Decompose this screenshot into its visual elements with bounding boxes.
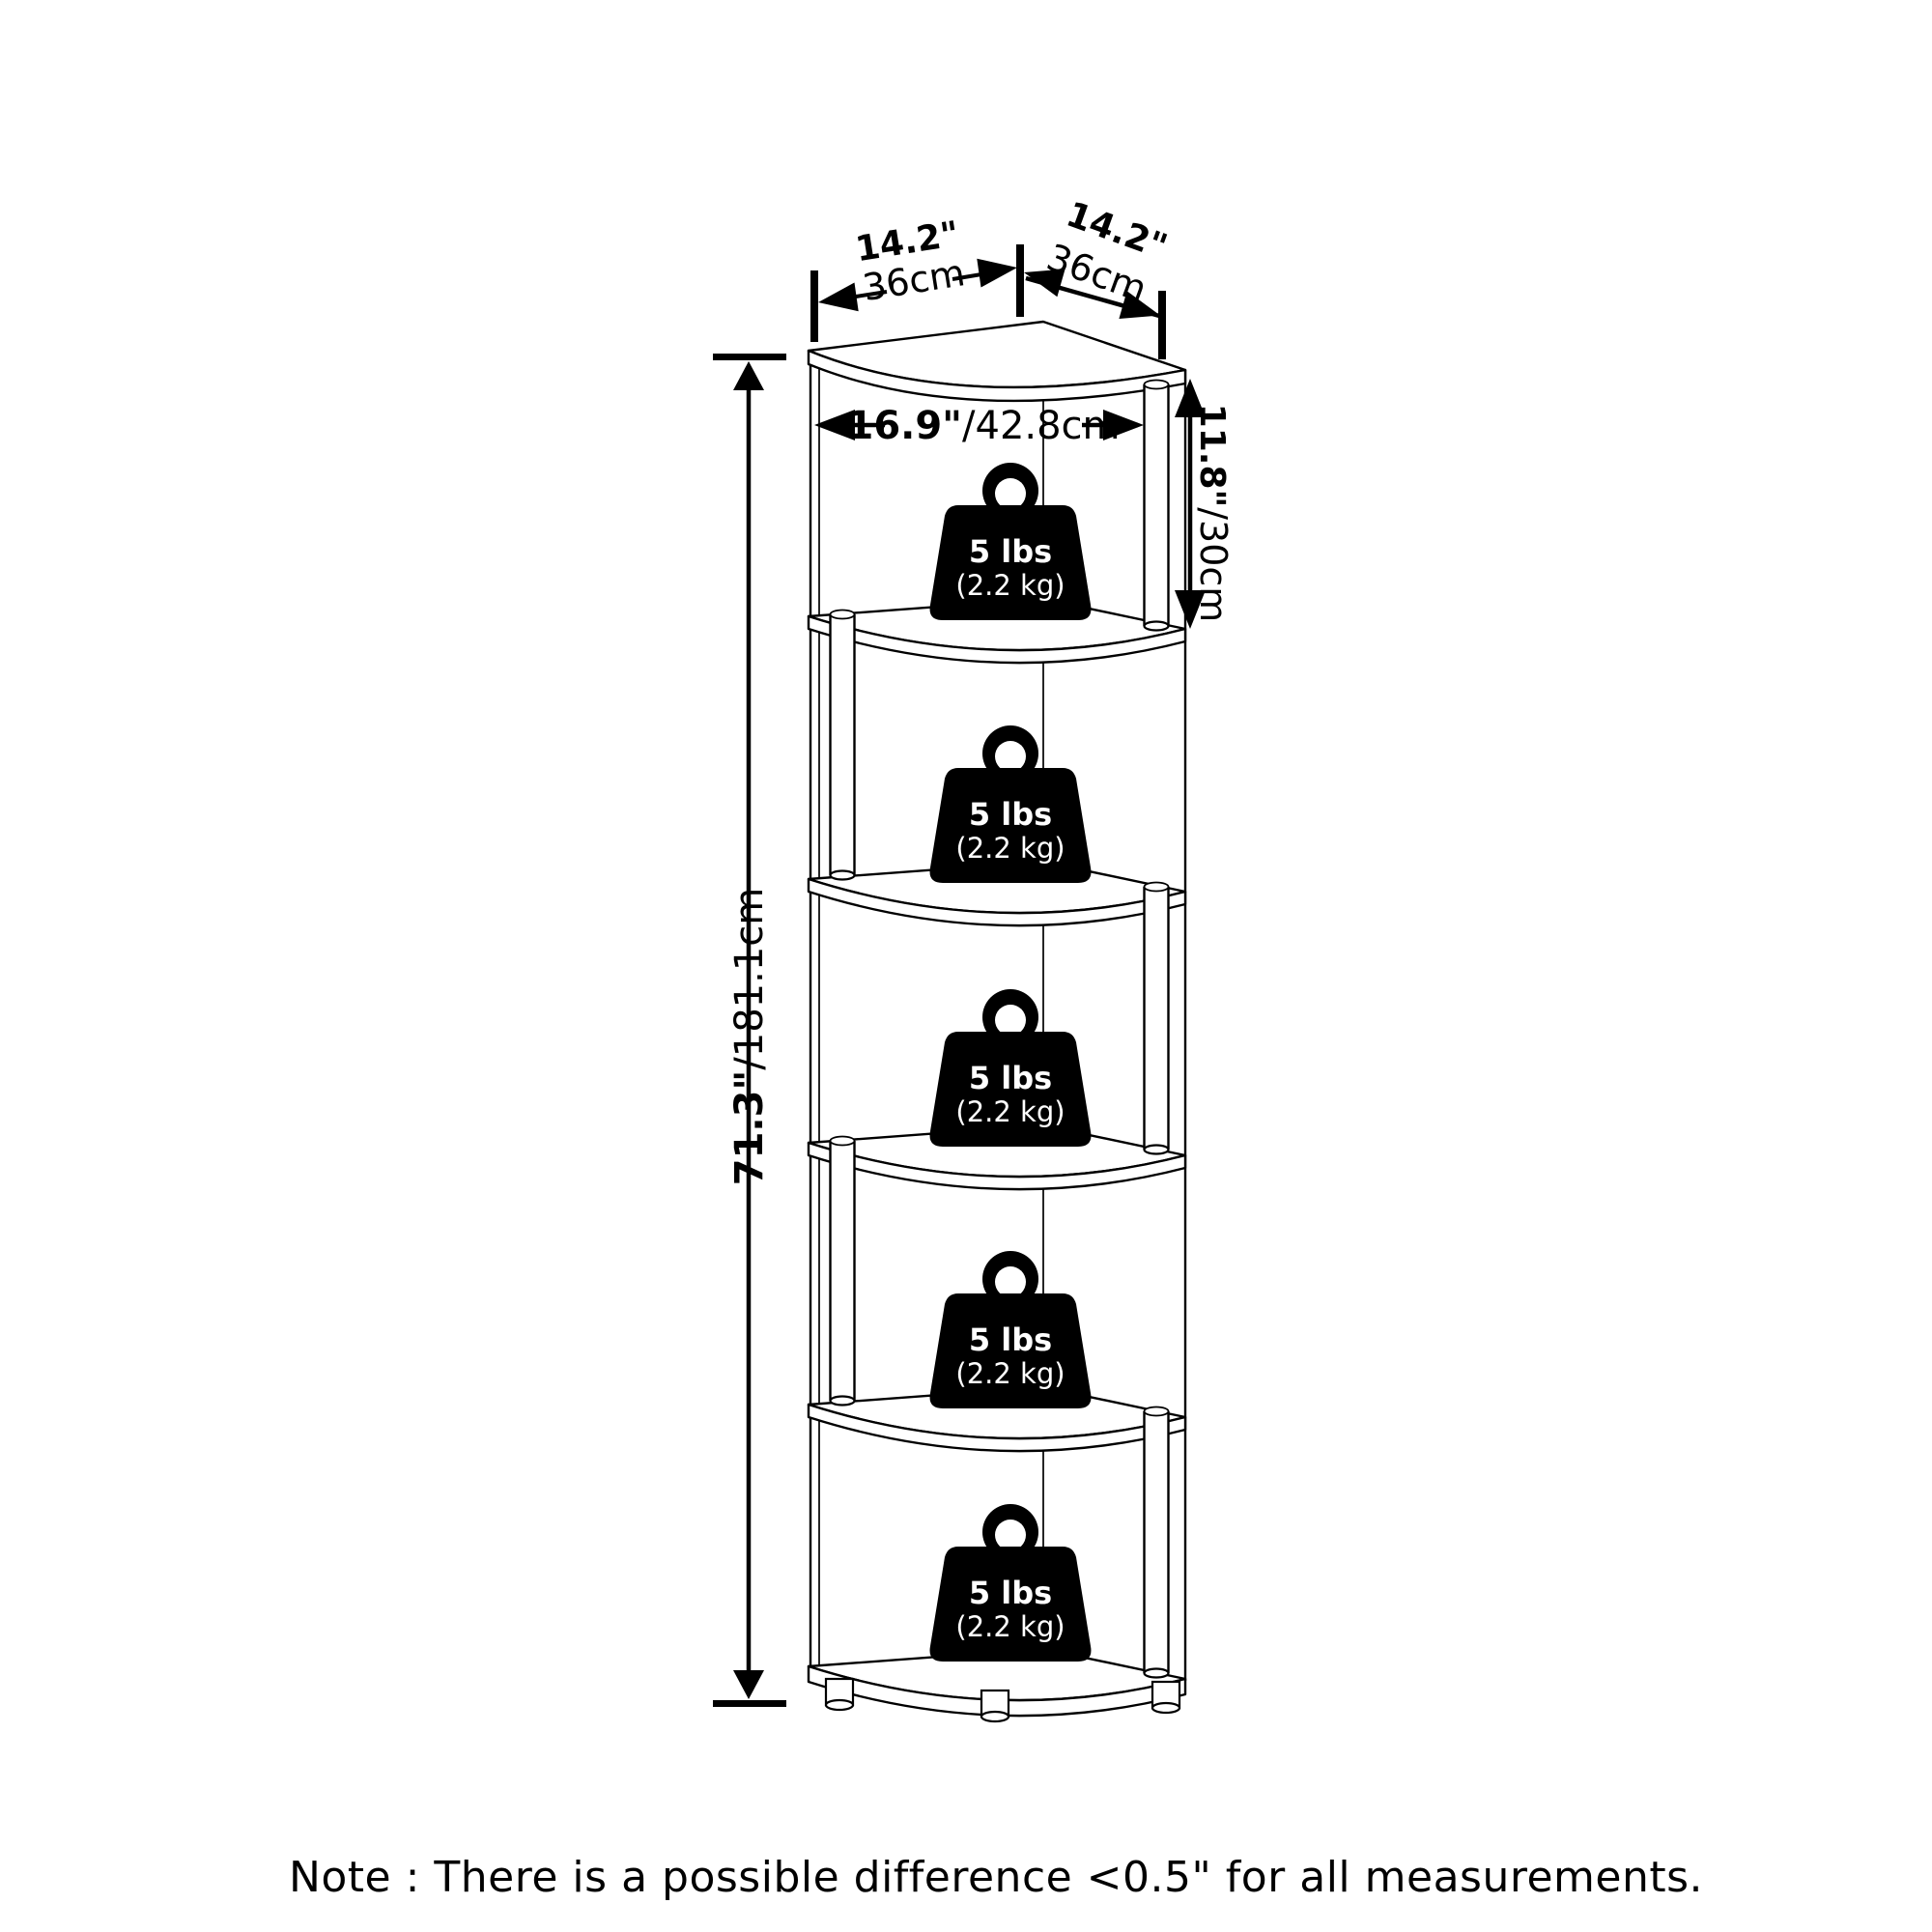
foot-left <box>826 1679 853 1710</box>
arrow-down-icon <box>733 1670 764 1699</box>
dim-top-left: 14.2" 36cm <box>810 214 1024 342</box>
weight-icon-3: 5 lbs (2.2 kg) <box>930 989 1092 1147</box>
weight-lbs-label: 5 lbs <box>969 1060 1052 1096</box>
weight-kg-label: (2.2 kg) <box>955 1357 1065 1390</box>
weight-kg-label: (2.2 kg) <box>955 569 1065 602</box>
weight-icon-4: 5 lbs (2.2 kg) <box>930 1251 1092 1408</box>
foot-middle <box>981 1690 1009 1721</box>
weight-kg-label: (2.2 kg) <box>955 1095 1065 1128</box>
arrow-left-icon <box>818 283 859 312</box>
dim-shelf-width-label: 16.9"/42.8cm <box>846 404 1120 448</box>
weight-lbs-label: 5 lbs <box>969 1575 1052 1611</box>
pole-tier5-right <box>1145 1407 1169 1678</box>
weight-lbs-label: 5 lbs <box>969 1321 1052 1358</box>
dim-total-height-cm: /181.1cm <box>727 888 772 1070</box>
corner-shelf-diagram: 5 lbs (2.2 kg) 5 lbs (2.2 kg) 5 lbs (2.2… <box>0 0 1932 1932</box>
dim-total-height-inches: 71.3" <box>727 1070 772 1186</box>
dim-cap-bottom <box>713 1700 786 1707</box>
arrow-up-icon <box>733 361 764 390</box>
weight-kg-label: (2.2 kg) <box>955 832 1065 865</box>
pole-tier3-right <box>1145 883 1169 1154</box>
dim-tick <box>1158 291 1166 359</box>
dim-tier-height: 11.8"/30cm <box>1175 379 1235 629</box>
weight-lbs-label: 5 lbs <box>969 796 1052 833</box>
dim-total-height-label: 71.3"/181.1cm <box>727 888 772 1185</box>
weight-icon-2: 5 lbs (2.2 kg) <box>930 725 1092 883</box>
dim-tick <box>1016 244 1024 317</box>
dim-tick <box>810 270 818 342</box>
dim-cap-top <box>713 354 786 360</box>
weight-icon-5: 5 lbs (2.2 kg) <box>930 1504 1092 1662</box>
pole-tier2-left <box>831 611 855 880</box>
dim-tier-height-cm: /30cm <box>1192 507 1235 622</box>
weight-lbs-label: 5 lbs <box>969 533 1052 570</box>
dim-total-height: 71.3"/181.1cm <box>713 354 786 1707</box>
arrow-right-icon <box>977 259 1017 288</box>
measurement-note: Note : There is a possible difference <0… <box>289 1853 1703 1902</box>
dim-shelf-width-inches: 16.9" <box>846 404 962 448</box>
foot-right <box>1152 1682 1179 1713</box>
dim-tier-height-inches: 11.8" <box>1192 404 1232 508</box>
pole-tier4-left <box>831 1137 855 1406</box>
product-dimension-diagram: 5 lbs (2.2 kg) 5 lbs (2.2 kg) 5 lbs (2.2… <box>0 0 1932 1932</box>
dim-shelf-width: 16.9"/42.8cm <box>814 404 1144 448</box>
pole-tier1-right <box>1145 381 1169 631</box>
weight-kg-label: (2.2 kg) <box>955 1610 1065 1643</box>
dim-tier-height-label: 11.8"/30cm <box>1192 404 1235 623</box>
dim-shelf-width-cm: /42.8cm <box>962 404 1121 448</box>
weight-icon-1: 5 lbs (2.2 kg) <box>930 463 1092 620</box>
top-shelf <box>809 322 1185 401</box>
